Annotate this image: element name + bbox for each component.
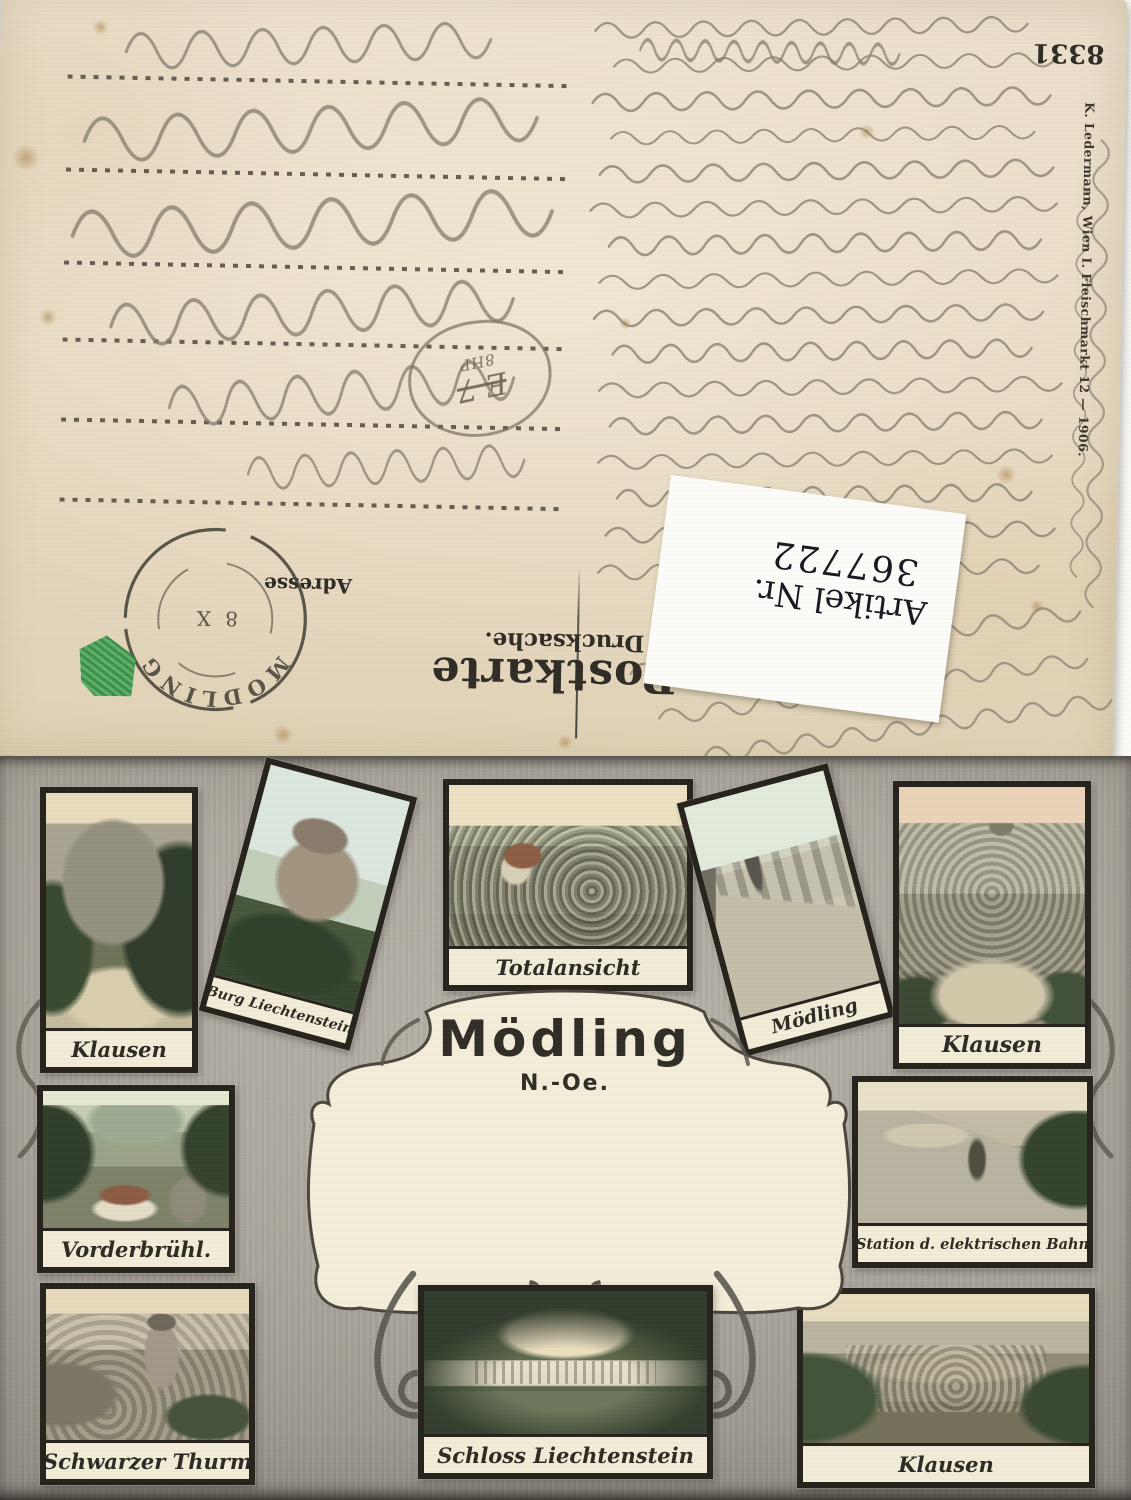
vignette-schloss-liechtenstein: Schloss Liechtenstein — [418, 1285, 713, 1479]
drucksache-label: Drucksache. — [477, 627, 652, 657]
svg-text:MÖDLING: MÖDLING — [133, 649, 295, 714]
postcard-back: Postkarte Drucksache. Adresse 8331 K. Le… — [0, 0, 1127, 777]
pencil-price-code: E 7 8HP — [450, 349, 510, 408]
vignette-klausen-top-right: Klausen — [893, 781, 1091, 1069]
vignette-photo-valley — [43, 1091, 229, 1228]
postmark-stamp: MÖDLING 8 X — [115, 520, 315, 720]
vignette-klausen-top-left: Klausen — [40, 787, 198, 1073]
postmark-code-text: 8 X — [192, 606, 238, 631]
vignette-photo-palace — [424, 1291, 707, 1434]
postcard-scan-photo: Postkarte Drucksache. Adresse 8331 K. Le… — [0, 0, 1131, 1500]
vignette-vorderbruehl: Vorderbrühl. — [37, 1085, 235, 1273]
vignette-photo-rocky-hill — [899, 787, 1085, 1024]
front-subtitle-text: N.-Oe. — [520, 1071, 610, 1096]
vignette-photo-tower — [46, 1289, 249, 1440]
vignette-station-elektrische-bahn: Station d. elektrischen Bahn — [852, 1076, 1093, 1268]
postkarte-heading: Postkarte — [428, 650, 679, 699]
vignette-caption: Schwarzer Thurm — [46, 1440, 249, 1479]
vignette-caption: Klausen — [46, 1028, 192, 1067]
vignette-photo-town-panorama — [449, 785, 687, 946]
vignette-caption: Schloss Liechtenstein — [424, 1434, 707, 1473]
series-number: 8331 — [1030, 37, 1107, 68]
postmark-town-text: MÖDLING — [133, 649, 295, 714]
vignette-schwarzer-thurm: Schwarzer Thurm — [40, 1283, 255, 1485]
postcard-front: Klausen Burg Liechtenstein Totalansicht … — [0, 756, 1131, 1500]
front-title-text: Mödling — [438, 1010, 692, 1068]
vignette-caption: Klausen — [899, 1024, 1085, 1063]
article-number-text: Artikel Nr. 367722 — [750, 531, 934, 633]
article-number-label: Artikel Nr. 367722 — [643, 475, 966, 723]
vignette-photo-tram-station — [858, 1082, 1087, 1223]
vignette-caption: Station d. elektrischen Bahn — [858, 1223, 1087, 1262]
vignette-photo-klausen-gorge — [46, 793, 192, 1028]
vignette-caption: Vorderbrühl. — [43, 1228, 229, 1267]
